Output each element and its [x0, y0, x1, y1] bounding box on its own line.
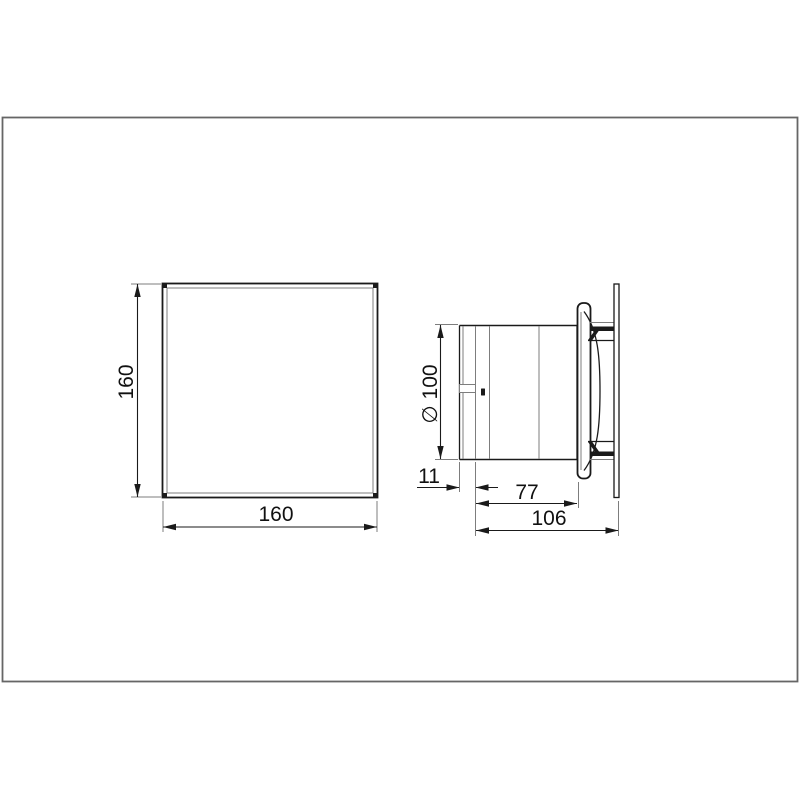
- diameter-dimension-label: ∅ 100: [419, 364, 442, 423]
- corner-mark: [163, 284, 168, 289]
- front-cover-panel: [614, 284, 619, 498]
- cable-clamp-mark: [481, 389, 485, 396]
- duct-clip: [460, 385, 476, 393]
- body-depth-dimension-label: 77: [515, 481, 538, 504]
- spigot-dimension-label: 11: [418, 465, 440, 488]
- mounting-flange: [578, 303, 591, 479]
- front-height-label: 160: [115, 364, 138, 399]
- total-depth-dimension-label: 106: [531, 507, 566, 530]
- drawing-page: 160 160: [0, 0, 800, 800]
- corner-mark: [373, 493, 378, 498]
- spacer-bar: [591, 327, 615, 332]
- front-view: [163, 284, 378, 498]
- corner-mark: [373, 284, 378, 289]
- technical-drawing-canvas: 160 160: [0, 0, 800, 800]
- front-panel-outline: [163, 284, 378, 498]
- corner-mark: [163, 493, 168, 498]
- spacer-bar: [591, 452, 615, 457]
- front-width-label: 160: [258, 503, 293, 526]
